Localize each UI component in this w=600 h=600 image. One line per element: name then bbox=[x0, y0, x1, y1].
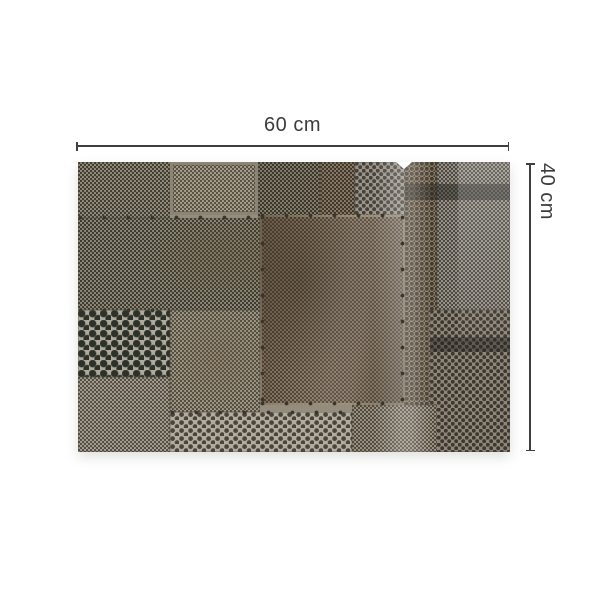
bolt-row-strip-top bbox=[170, 410, 352, 415]
metal-panel-bottom-right bbox=[352, 405, 437, 452]
width-dimension-line bbox=[76, 145, 509, 147]
photo-edge-notch bbox=[396, 162, 412, 169]
metal-panel-center-rust bbox=[260, 215, 405, 405]
metal-panel-top-left bbox=[78, 162, 170, 218]
dimension-diagram: 60 cm 40 cm bbox=[0, 0, 600, 600]
bolt-column-center-left bbox=[260, 215, 265, 405]
height-dimension-tick-bottom bbox=[526, 450, 535, 452]
metal-panel-big-holes bbox=[78, 310, 170, 377]
bolt-row-center-top bbox=[260, 213, 405, 218]
metal-panel-bottom-left bbox=[78, 377, 170, 452]
metal-panel-top-brown bbox=[320, 162, 355, 217]
bolt-column-center-right bbox=[400, 215, 405, 405]
bolt-row-center-bottom bbox=[260, 401, 405, 406]
metal-panel-mid-left bbox=[78, 218, 260, 310]
metal-panel-grunge-tan bbox=[170, 310, 260, 412]
height-dimension-line bbox=[529, 163, 531, 451]
metal-panel-bottom-strip bbox=[170, 412, 352, 452]
height-dimension-tick-top bbox=[526, 163, 535, 165]
height-dimension-label: 40 cm bbox=[535, 163, 558, 451]
width-dimension-tick-right bbox=[508, 142, 510, 151]
metal-panel-top-medium bbox=[355, 162, 405, 217]
width-dimension-label: 60 cm bbox=[76, 114, 509, 137]
product-image bbox=[78, 162, 510, 452]
width-dimension-tick-left bbox=[76, 142, 78, 151]
bolt-row-holes-top bbox=[78, 308, 170, 313]
metal-panel-right-upper bbox=[437, 162, 510, 310]
bolt-row-seam-top bbox=[78, 215, 260, 220]
metal-panel-top-dark bbox=[258, 162, 320, 218]
metal-panel-top-framed bbox=[170, 162, 258, 215]
metal-panel-right-lower bbox=[430, 310, 510, 452]
